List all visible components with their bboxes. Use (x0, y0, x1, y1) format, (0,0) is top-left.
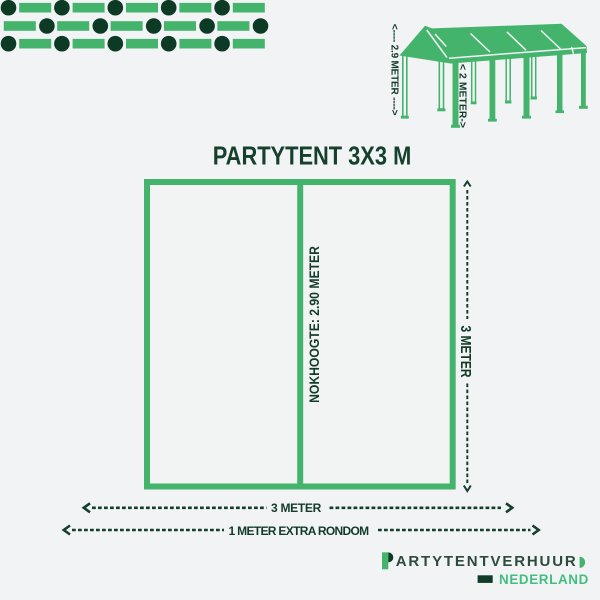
svg-text:3 METER: 3 METER (271, 501, 322, 515)
svg-text:<---- 2.9 METER ---->: <---- 2.9 METER ----> (389, 24, 400, 116)
svg-text:3 METER: 3 METER (458, 325, 474, 377)
svg-text:ARTYTENTVERHUUR: ARTYTENTVERHUUR (396, 553, 578, 570)
svg-text:PARTYTENT 3X3 M: PARTYTENT 3X3 M (213, 142, 412, 171)
svg-text:1 METER EXTRA RONDOM: 1 METER EXTRA RONDOM (229, 524, 370, 538)
svg-text:NEDERLAND: NEDERLAND (499, 572, 589, 587)
svg-text:< 2 METER->: < 2 METER-> (457, 64, 468, 128)
svg-text:NOKHOOGTE: 2.90 METER: NOKHOOGTE: 2.90 METER (306, 246, 322, 403)
